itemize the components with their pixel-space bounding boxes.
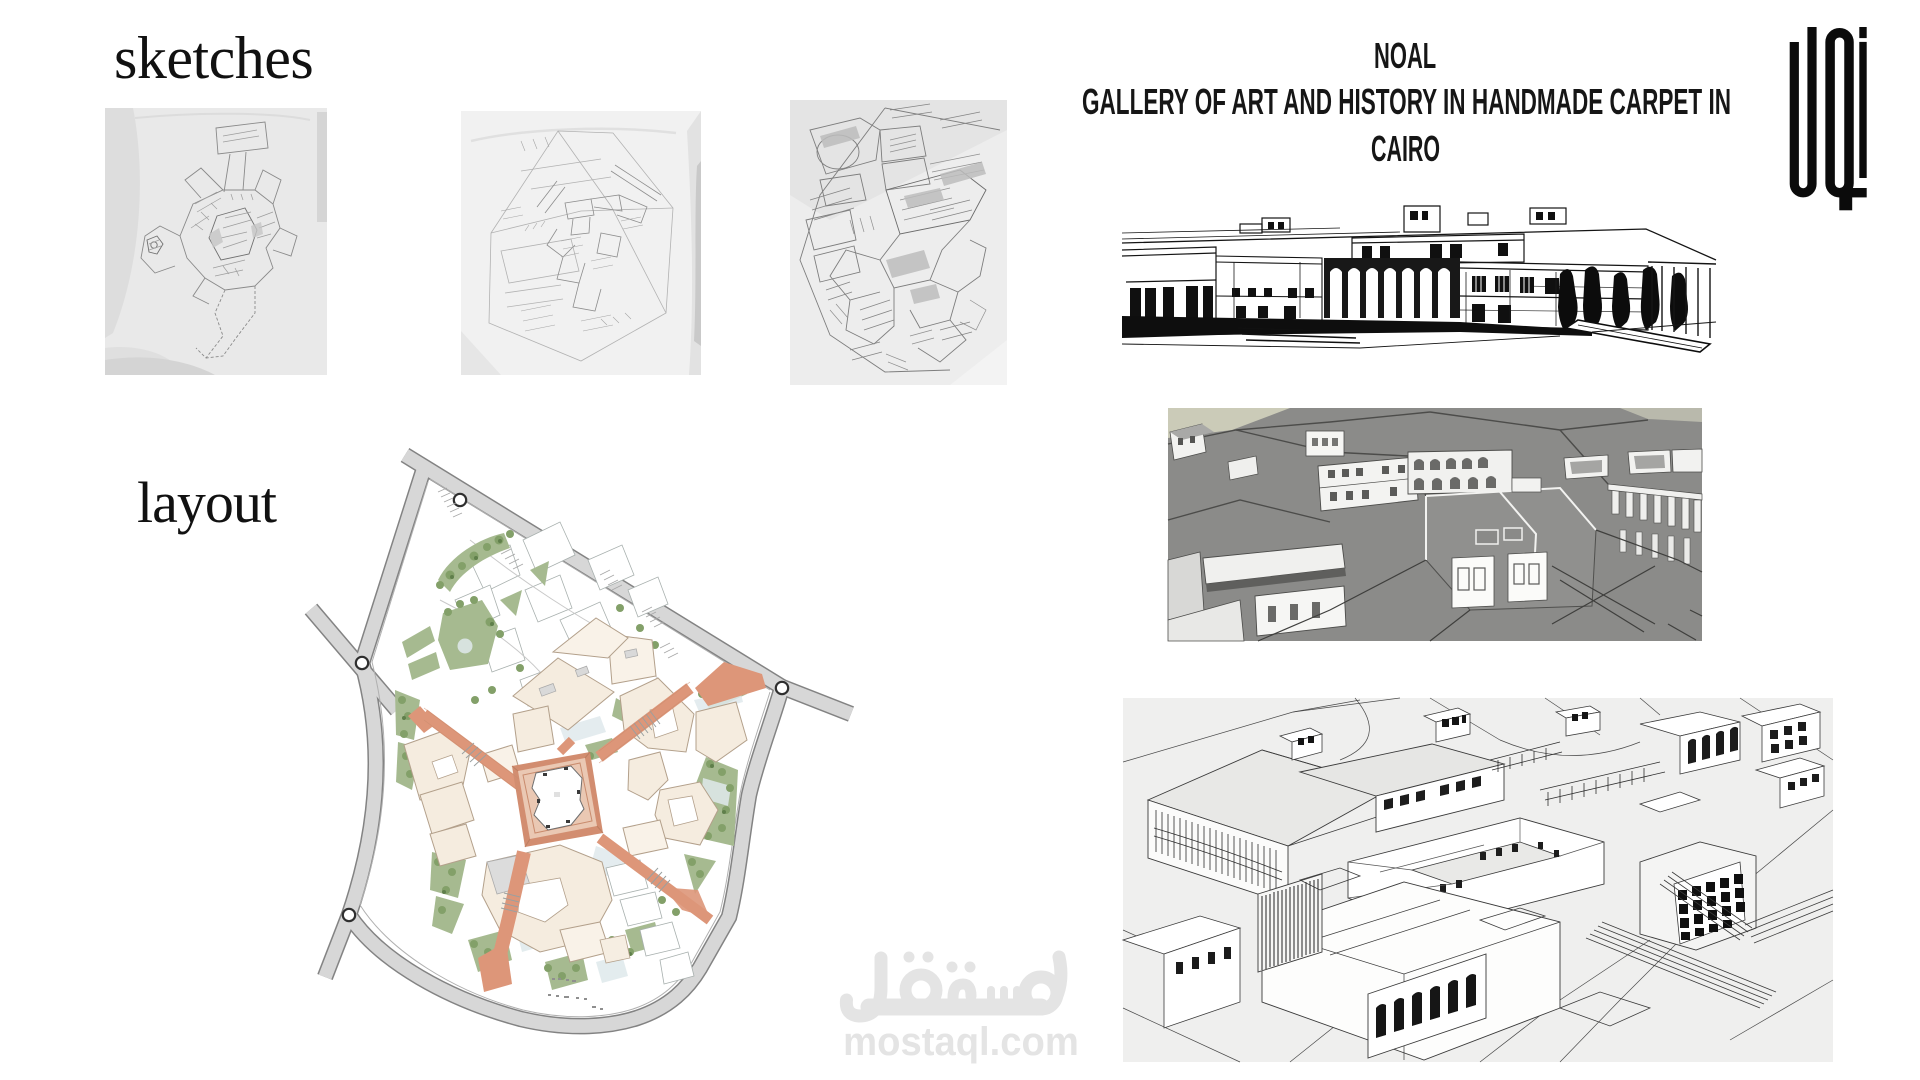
svg-text:mostaql.com: mostaql.com bbox=[843, 1020, 1079, 1064]
